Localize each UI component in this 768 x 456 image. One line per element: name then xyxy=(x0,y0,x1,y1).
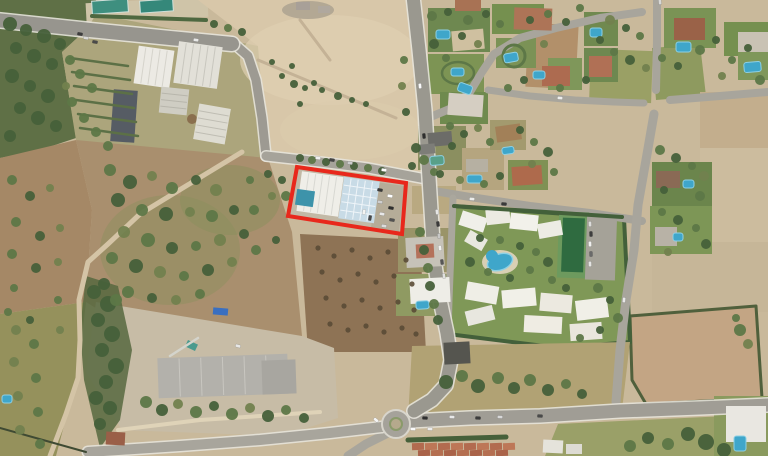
cottage xyxy=(106,432,126,446)
car xyxy=(389,218,395,222)
swimming-pool xyxy=(502,146,515,155)
tree xyxy=(577,389,587,399)
carport xyxy=(443,341,470,364)
tree xyxy=(556,84,564,92)
concrete-slab xyxy=(261,359,296,394)
tree xyxy=(363,101,369,107)
tree xyxy=(185,207,195,217)
car xyxy=(588,241,591,246)
tree xyxy=(91,127,101,137)
tree xyxy=(10,42,22,54)
warehouse-annex xyxy=(295,189,315,207)
tree xyxy=(492,372,504,384)
tree xyxy=(701,239,711,249)
tree xyxy=(444,8,452,16)
tree xyxy=(56,326,64,334)
villa xyxy=(419,143,436,154)
tree xyxy=(299,413,309,423)
car xyxy=(347,161,353,165)
cottage xyxy=(106,432,126,446)
tree xyxy=(140,396,152,408)
terrace-roof xyxy=(490,443,502,450)
bush xyxy=(359,297,364,302)
tree xyxy=(46,184,54,192)
tree xyxy=(123,175,137,189)
car xyxy=(440,259,444,265)
car xyxy=(658,0,661,5)
terrace-roof xyxy=(431,450,443,456)
terrace-roof xyxy=(412,443,424,450)
car xyxy=(537,414,542,417)
swimming-pool xyxy=(430,155,445,165)
truck xyxy=(213,307,229,315)
swimming-pool xyxy=(533,71,545,79)
swimming-pool xyxy=(436,30,450,39)
terrace-roof xyxy=(438,443,450,450)
car xyxy=(435,209,439,215)
tree xyxy=(625,55,635,65)
tree xyxy=(129,259,143,273)
tree xyxy=(476,234,484,242)
greenhouse xyxy=(173,41,222,89)
tree xyxy=(210,20,218,28)
terrace-roof xyxy=(444,450,456,456)
car xyxy=(427,427,432,430)
tree xyxy=(239,229,249,239)
swimming-pool xyxy=(673,233,683,241)
warehouse-skylight-roof xyxy=(338,177,379,224)
villa xyxy=(455,0,481,11)
tree xyxy=(662,438,674,450)
terrace-roof xyxy=(451,443,463,450)
tree xyxy=(528,160,536,168)
car xyxy=(589,251,592,256)
car xyxy=(418,83,421,88)
roundabout-island xyxy=(390,418,402,430)
tree xyxy=(264,170,272,178)
car xyxy=(377,200,383,204)
terrace-roof xyxy=(431,450,443,456)
car xyxy=(442,273,446,279)
tree xyxy=(548,276,556,284)
tree xyxy=(658,208,666,216)
car xyxy=(381,168,387,172)
tree xyxy=(296,154,304,162)
tree xyxy=(673,215,683,225)
tree xyxy=(506,274,514,282)
tree xyxy=(543,257,553,267)
swimming-pool xyxy=(451,68,464,76)
terrace-roof xyxy=(457,450,469,456)
tree xyxy=(516,242,524,250)
townhouse-block xyxy=(575,297,609,321)
debris xyxy=(318,6,330,13)
bush xyxy=(315,245,320,250)
nursery-shed xyxy=(159,87,190,116)
tree xyxy=(99,375,113,389)
car xyxy=(362,209,366,215)
terrace-roof xyxy=(425,443,437,450)
tree xyxy=(111,193,125,207)
tree xyxy=(732,314,740,322)
tree xyxy=(14,102,26,114)
swimming-pool xyxy=(673,233,683,241)
tree xyxy=(35,439,45,449)
bush xyxy=(377,305,382,310)
tree xyxy=(209,401,219,411)
tree xyxy=(606,296,614,304)
villa xyxy=(542,66,570,86)
tree xyxy=(596,36,604,44)
tree xyxy=(224,24,232,32)
car xyxy=(449,415,454,418)
tree xyxy=(159,207,173,221)
tree xyxy=(456,370,468,382)
bush xyxy=(399,325,404,330)
tree xyxy=(526,16,534,24)
tree xyxy=(214,234,226,246)
tree xyxy=(642,432,654,444)
sports-court xyxy=(92,0,129,14)
tree xyxy=(532,248,540,256)
tree xyxy=(278,176,286,184)
car xyxy=(588,261,591,266)
swimming-pool xyxy=(683,180,694,188)
tree xyxy=(46,58,58,70)
tree xyxy=(297,101,303,107)
tree xyxy=(179,271,189,281)
building xyxy=(566,444,582,454)
car xyxy=(368,215,372,221)
tree xyxy=(484,268,492,276)
terrace-roof xyxy=(470,450,482,456)
tree xyxy=(664,248,672,256)
tree xyxy=(463,15,473,25)
car xyxy=(193,38,199,42)
tree xyxy=(190,406,202,418)
car xyxy=(589,231,592,236)
terrace-roof xyxy=(483,450,495,456)
townhouse-block xyxy=(509,213,539,232)
car xyxy=(377,188,383,192)
villa xyxy=(738,32,768,52)
tree xyxy=(530,138,538,146)
car xyxy=(589,251,592,256)
tree xyxy=(448,142,456,150)
car xyxy=(469,197,474,200)
car xyxy=(387,194,393,198)
car xyxy=(329,158,335,162)
bush xyxy=(395,299,400,304)
tree xyxy=(11,325,21,335)
car xyxy=(77,32,83,36)
tree xyxy=(171,295,181,305)
tree xyxy=(486,138,494,146)
tree xyxy=(465,257,475,267)
building xyxy=(543,439,564,453)
tree xyxy=(349,97,355,103)
bush xyxy=(327,321,332,326)
bush xyxy=(409,281,414,286)
tree xyxy=(439,375,453,389)
car xyxy=(379,212,385,216)
tree xyxy=(442,54,450,62)
car xyxy=(410,427,415,430)
vacant-parcel xyxy=(630,306,762,404)
tree xyxy=(474,124,482,132)
tree xyxy=(610,48,618,56)
car xyxy=(437,233,441,239)
tree xyxy=(262,410,274,422)
villa xyxy=(419,143,436,154)
townhouse-block xyxy=(539,293,572,314)
tree xyxy=(191,175,201,185)
terrace-roof xyxy=(412,443,424,450)
tennis-court-inner xyxy=(561,218,585,273)
tree xyxy=(755,75,765,85)
terrace-roof xyxy=(464,443,476,450)
building xyxy=(566,444,582,454)
tree xyxy=(29,339,39,349)
townhouse-block xyxy=(501,288,536,309)
swimming-pool xyxy=(590,28,602,37)
tree xyxy=(5,69,19,83)
tree xyxy=(695,45,705,55)
car xyxy=(622,297,625,302)
car xyxy=(92,40,98,44)
tree xyxy=(698,434,714,450)
tree xyxy=(480,180,488,188)
greenhouse xyxy=(134,46,175,89)
tree xyxy=(54,38,66,50)
tree xyxy=(596,326,604,334)
tree xyxy=(15,425,25,435)
tree xyxy=(446,122,454,130)
tennis-court-inner xyxy=(561,218,585,273)
tree xyxy=(543,147,553,157)
warehouse-annex xyxy=(295,189,315,207)
car xyxy=(381,224,387,228)
tree xyxy=(308,156,316,164)
tree xyxy=(54,296,62,304)
tree xyxy=(13,391,23,401)
bush xyxy=(403,257,408,262)
tree xyxy=(268,192,276,200)
villa xyxy=(656,171,680,188)
car xyxy=(438,245,442,251)
townhouse-block xyxy=(524,315,563,334)
terrace-roof xyxy=(496,450,508,456)
terrace-roof xyxy=(438,443,450,450)
tree xyxy=(398,82,406,90)
tree xyxy=(692,224,700,232)
tree xyxy=(458,32,466,40)
villa xyxy=(738,32,768,52)
car xyxy=(557,96,562,99)
tree xyxy=(31,373,41,383)
tree xyxy=(104,164,116,176)
bush xyxy=(411,307,416,312)
car xyxy=(379,212,385,216)
terrace-roof xyxy=(477,443,489,450)
car xyxy=(622,297,625,302)
bush xyxy=(337,277,342,282)
tree xyxy=(166,242,178,254)
tree xyxy=(474,40,482,48)
tree xyxy=(50,120,62,132)
car xyxy=(501,202,506,205)
tree xyxy=(25,191,35,201)
tree xyxy=(516,126,524,134)
townhouse-block xyxy=(501,288,536,309)
car xyxy=(422,416,427,419)
tree xyxy=(364,164,372,172)
tree xyxy=(562,284,570,292)
tree xyxy=(65,55,75,65)
tree xyxy=(550,168,558,176)
tree xyxy=(322,158,330,166)
tree xyxy=(166,182,178,194)
car xyxy=(658,0,661,5)
car xyxy=(440,259,444,265)
tree xyxy=(460,130,468,138)
swimming-pool xyxy=(2,395,12,403)
car xyxy=(329,158,335,162)
bush xyxy=(341,303,346,308)
concrete-slab xyxy=(261,359,296,394)
swimming-pool xyxy=(744,61,762,72)
car xyxy=(589,231,592,236)
villa xyxy=(674,18,705,40)
car xyxy=(501,202,506,205)
tree xyxy=(108,358,124,374)
hedge-line xyxy=(408,437,506,440)
tree xyxy=(415,227,425,237)
villa xyxy=(511,165,542,186)
tree xyxy=(400,56,408,64)
tree xyxy=(613,313,623,323)
tree xyxy=(433,315,443,325)
car xyxy=(436,221,440,227)
tree xyxy=(173,399,183,409)
bush xyxy=(323,295,328,300)
tree xyxy=(496,172,504,180)
tree xyxy=(202,264,214,276)
swimming-pool xyxy=(502,146,515,155)
terrace-roof xyxy=(503,443,515,450)
tree xyxy=(524,374,536,386)
car xyxy=(435,209,439,215)
tree xyxy=(425,281,435,291)
tree xyxy=(718,72,726,80)
bush xyxy=(363,323,368,328)
swimming-pool xyxy=(734,436,746,451)
tree xyxy=(26,316,34,324)
townhouse-block xyxy=(509,213,539,232)
villa xyxy=(451,29,485,52)
tree xyxy=(91,313,105,327)
tree xyxy=(3,17,17,31)
car xyxy=(347,161,353,165)
tree xyxy=(411,143,421,153)
car xyxy=(475,416,480,419)
terrace-roof xyxy=(451,443,463,450)
tree xyxy=(423,263,433,273)
tree xyxy=(582,76,590,84)
tree xyxy=(402,108,410,116)
tree xyxy=(41,89,55,103)
tree xyxy=(9,357,19,367)
tree xyxy=(674,62,682,70)
swimming-pool xyxy=(676,42,691,52)
water-tank xyxy=(187,114,197,124)
bush xyxy=(349,247,354,252)
car xyxy=(442,273,446,279)
tree xyxy=(227,257,237,267)
tree xyxy=(62,82,70,90)
car xyxy=(92,40,98,44)
car xyxy=(377,188,383,192)
tree xyxy=(103,141,113,151)
tree xyxy=(87,285,101,299)
tree xyxy=(671,153,681,163)
tree xyxy=(576,334,584,342)
tree xyxy=(688,162,696,170)
satellite-canvas xyxy=(0,0,768,456)
aerial-map-view xyxy=(0,0,768,456)
tree xyxy=(636,32,644,40)
tree xyxy=(622,24,630,32)
bush xyxy=(345,327,350,332)
tree xyxy=(744,44,752,52)
swimming-pool xyxy=(467,175,482,183)
complex-pool xyxy=(486,250,498,262)
swimming-pool xyxy=(430,155,445,165)
villa xyxy=(466,159,488,172)
tree xyxy=(147,171,157,181)
swimming-pool xyxy=(533,71,545,79)
tree xyxy=(27,49,41,63)
tree xyxy=(681,427,695,441)
swimming-pool xyxy=(734,436,746,451)
tree xyxy=(605,15,615,25)
swimming-pool xyxy=(744,61,762,72)
car xyxy=(381,168,387,172)
tree xyxy=(156,404,168,416)
car xyxy=(588,221,591,226)
tree xyxy=(471,379,485,393)
swimming-pool xyxy=(451,68,464,76)
terrace-roof xyxy=(483,450,495,456)
tree xyxy=(542,384,554,396)
terrace-roof xyxy=(496,450,508,456)
tree xyxy=(191,241,201,251)
warehouse-skylight-roof xyxy=(338,177,379,224)
tree xyxy=(31,111,45,125)
carport xyxy=(443,341,470,364)
car xyxy=(83,36,89,40)
terrace-roof xyxy=(464,443,476,450)
tree xyxy=(4,308,12,316)
swimming-pool xyxy=(590,28,602,37)
tree xyxy=(56,224,64,232)
tree xyxy=(334,92,342,100)
tree xyxy=(576,4,584,12)
tree xyxy=(245,403,255,413)
building xyxy=(543,439,564,453)
tree xyxy=(106,252,118,264)
tree xyxy=(419,245,429,255)
